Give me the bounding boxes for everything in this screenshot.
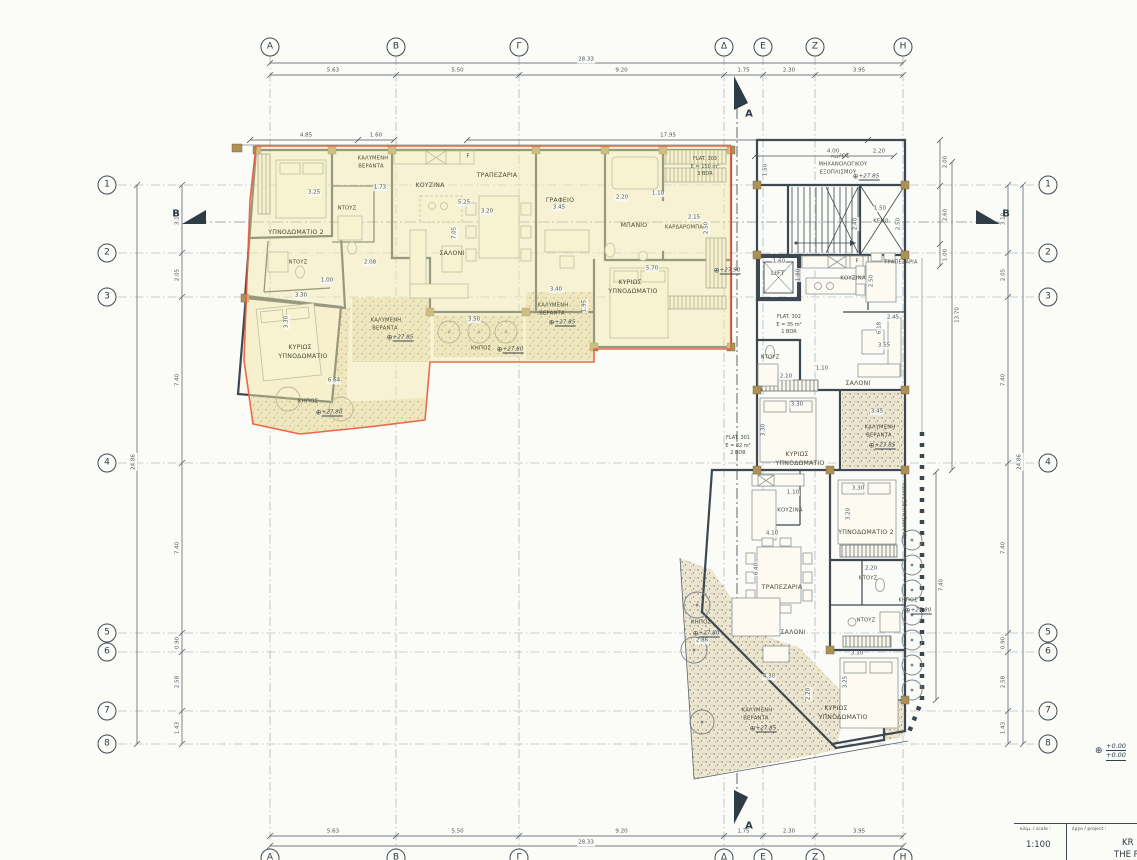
floor-plan-sheet: ⊕ +0.00 +0.00 κλίμ. / scale : 1:100 έργο… [0,0,1137,860]
fence-line [907,432,922,737]
plan-linework [0,0,1137,860]
highlighted-flat-303-overlay [244,146,731,434]
staircase [792,187,858,253]
void-cross [860,185,905,255]
lift [759,257,798,298]
